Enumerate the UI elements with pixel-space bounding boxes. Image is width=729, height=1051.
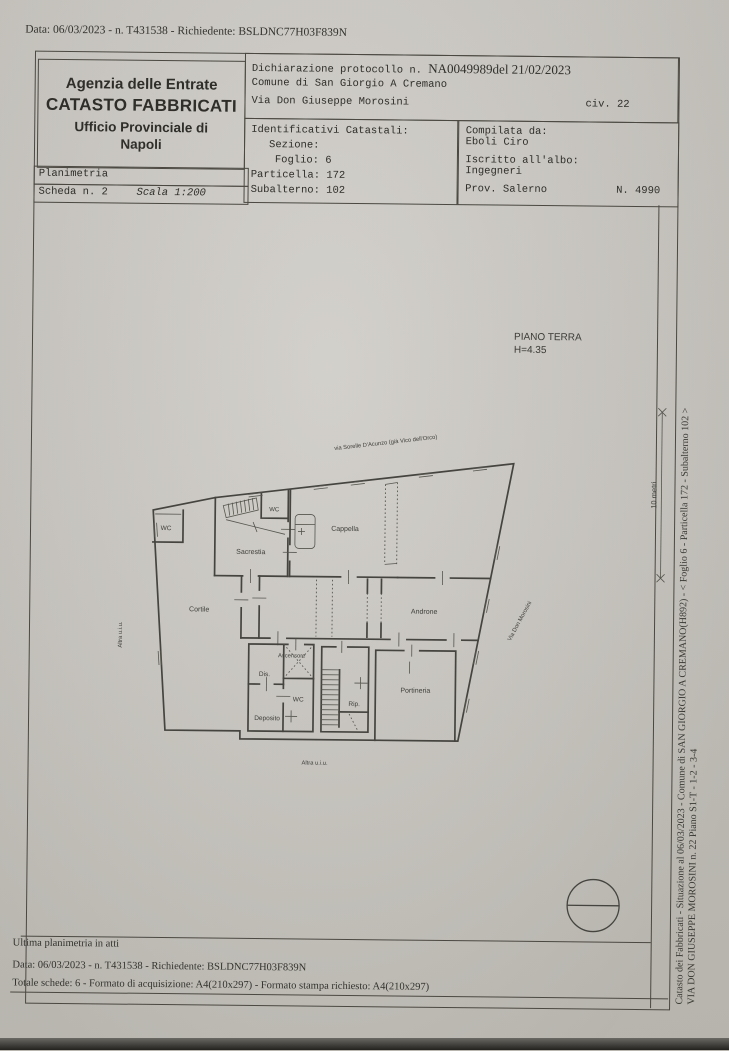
civico-number: civ. 22 [585, 98, 629, 110]
protocol-row: Dichiarazione protocollo n. NA0049989del… [252, 59, 571, 78]
catasto-title: CATASTO FABBRICATI [46, 95, 237, 117]
footer-ultima-line: Ultima planimetria in atti [13, 937, 120, 949]
scale-bar-label: 10 metri [649, 481, 658, 509]
north-symbol-icon [561, 875, 626, 940]
planimetria-label: Planimetria [39, 168, 108, 181]
floor-name: PIANO TERRA [514, 331, 582, 345]
room-label-wc-left: WC [161, 525, 172, 532]
agency-header-box: Agenzia delle Entrate CATASTO FABBRICATI… [37, 59, 246, 170]
room-label-deposito: Deposito [254, 715, 280, 722]
floor-plan-drawing: WC WC Sacrestia Cappella Cortile Androne… [93, 424, 557, 769]
room-sacrestia-walls [214, 489, 295, 584]
room-label-ascensore: Ascensore [278, 653, 305, 659]
floor-height: H=4.35 [514, 344, 582, 358]
scheda-number: Scheda n. 2 [38, 186, 107, 199]
elevator-cross [283, 644, 313, 678]
stairs-hatch [321, 670, 340, 725]
floor-label-block: PIANO TERRA H=4.35 [514, 331, 582, 358]
cadastral-identifiers-box: Identificativi Catastali: Sezione: Fogli… [243, 118, 458, 205]
stairwell-block-walls [321, 641, 369, 732]
protocol-value: NA0049989del 21/02/2023 [428, 61, 571, 77]
sezione-field: Sezione: [269, 139, 320, 152]
scale-bar: 10 metri [646, 398, 674, 592]
subalterno-field: Subalterno: 102 [251, 184, 346, 197]
albo-number: N. 4990 [616, 185, 660, 197]
altra-uiu-left-label: Altra u.i.u. [118, 621, 124, 648]
agency-name: Agenzia delle Entrate [66, 75, 218, 94]
scala-label: Scala 1:200 [136, 187, 205, 200]
declaration-box: Dichiarazione protocollo n. NA0049989del… [244, 53, 679, 124]
identifiers-title: Identificativi Catastali: [251, 124, 409, 138]
compiler-box: Compilata da: Eboli Ciro Iscritto all'al… [457, 120, 679, 207]
middle-band-walls [234, 569, 491, 648]
foglio-field: Foglio: 6 [275, 154, 332, 167]
prov-field: Prov. Salerno [465, 183, 547, 196]
comune-row: Comune di San Giorgio A Cremano [252, 77, 447, 91]
room-label-portineria: Portineria [400, 688, 430, 695]
particella-field: Particella: 172 [251, 169, 346, 182]
street-label-top: via Sorelle D'Acunzo (già Vico dell'Orco… [334, 435, 438, 453]
ramp-line [226, 520, 285, 535]
scheda-box: Scheda n. 2 Scala 1:200 [33, 184, 248, 205]
room-label-cappella: Cappella [331, 526, 359, 533]
scan-header-line: Data: 06/03/2023 - n. T431538 - Richiede… [25, 24, 347, 39]
room-label-wc-bottom: WC [293, 696, 304, 703]
cadastral-sheet: Data: 06/03/2023 - n. T431538 - Richiede… [0, 0, 729, 1051]
albo-value: Ingegneri [465, 165, 522, 178]
scanner-edge-shadow [0, 1038, 729, 1050]
room-label-androne: Androne [411, 609, 438, 616]
street-label-right: Via Don Morosini [507, 601, 533, 643]
room-label-wc-top: WC [269, 507, 280, 513]
room-label-cortile: Cortile [189, 606, 209, 613]
window-hatches [158, 463, 501, 713]
altra-uiu-bottom-label: Altra u.i.u. [301, 760, 328, 766]
room-label-sacrestia: Sacrestia [236, 549, 265, 556]
compilata-name: Eboli Ciro [466, 136, 529, 149]
via-row: Via Don Giuseppe Morosini [251, 95, 409, 109]
protocol-label: Dichiarazione protocollo n. [252, 63, 422, 77]
room-label-rip: Rip. [348, 701, 360, 708]
office-city: Napoli [120, 136, 161, 153]
room-label-dis: Dis. [259, 671, 270, 678]
margin-vertical-text: Catasto dei Fabbricati - Situazione al 0… [674, 408, 704, 1005]
stair-hatch [228, 498, 254, 516]
office-line: Ufficio Provinciale di [74, 118, 208, 136]
